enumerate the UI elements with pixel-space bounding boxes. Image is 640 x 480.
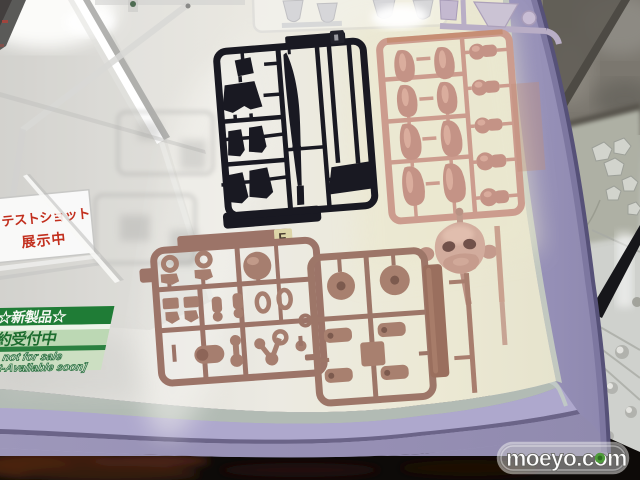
svg-text:☆新製品☆: ☆新製品☆ bbox=[0, 308, 68, 326]
svg-text:ent-Available soon]: ent-Available soon] bbox=[0, 361, 89, 375]
svg-text:moeyo.com: moeyo.com bbox=[506, 445, 627, 471]
svg-text:予約受付中: 予約受付中 bbox=[0, 329, 58, 349]
